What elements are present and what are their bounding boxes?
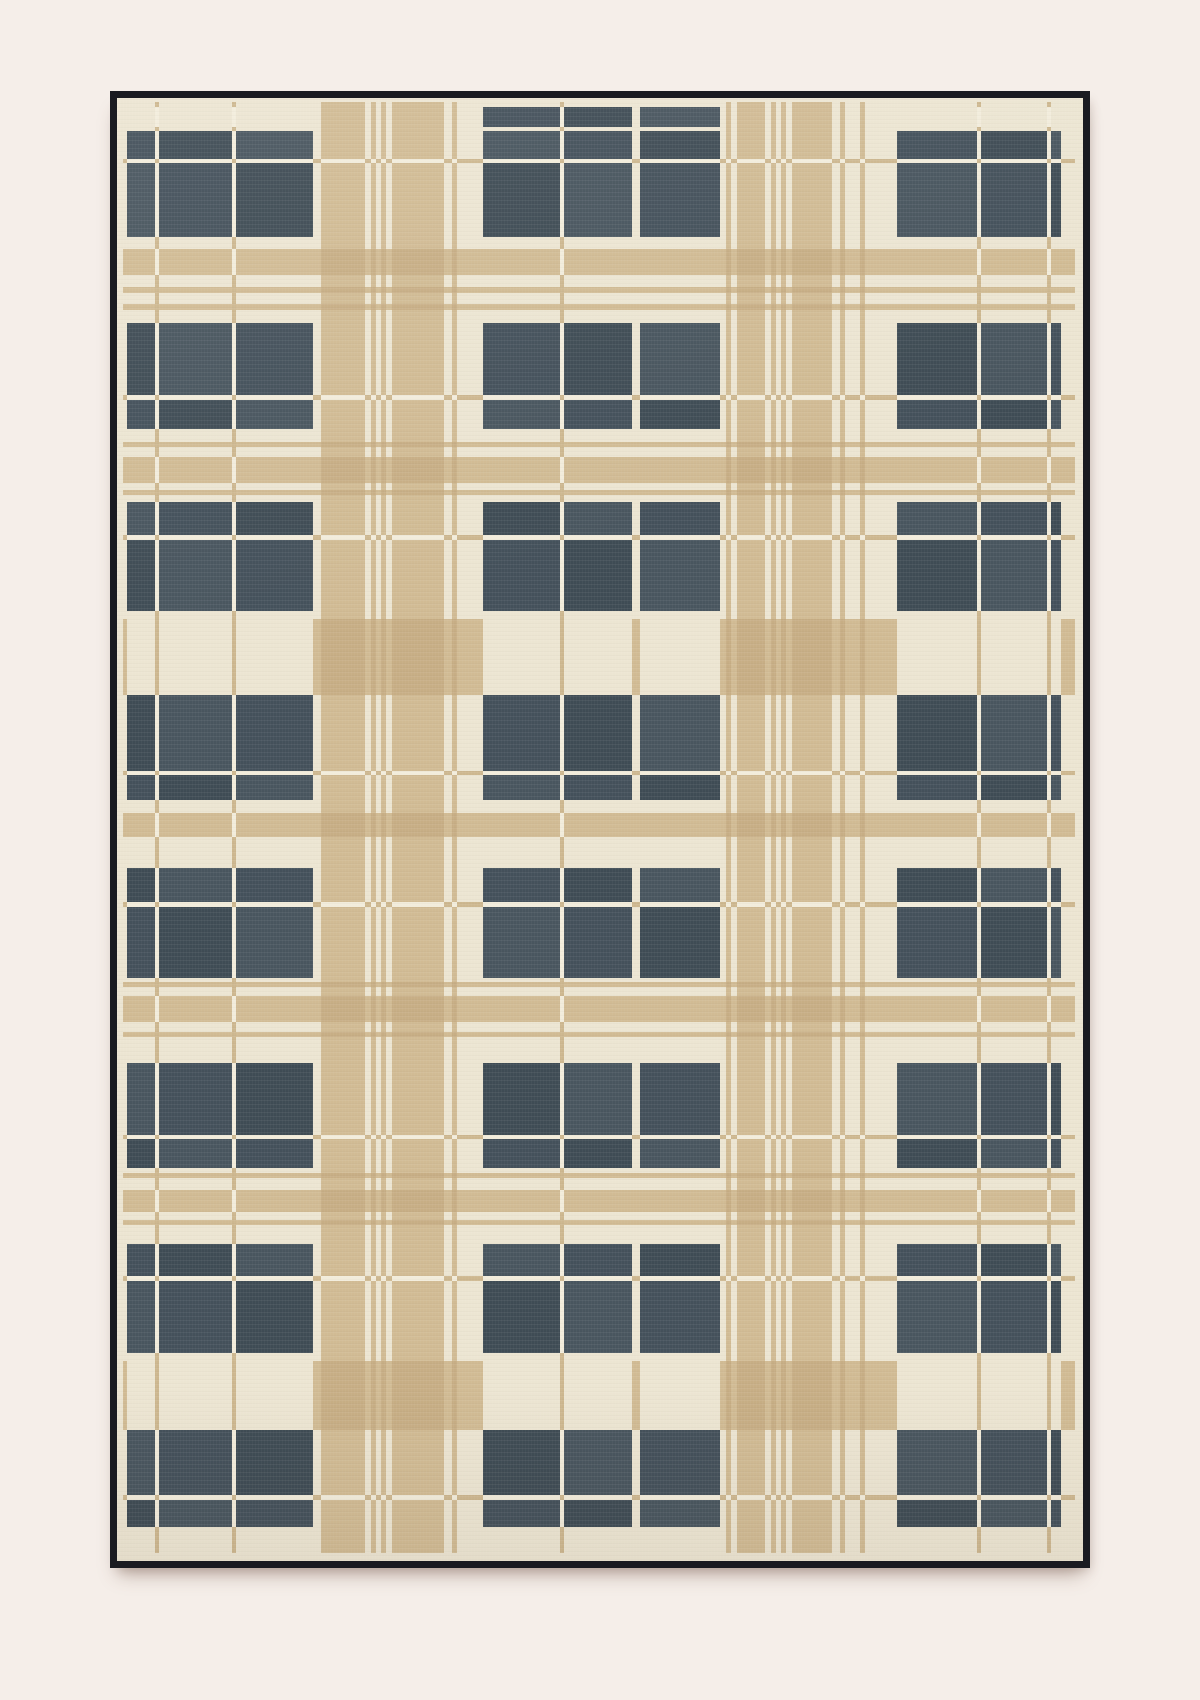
weave-cell [1051,868,1061,902]
weave-cell [981,1063,1047,1135]
weave-cell [865,1430,897,1495]
weave-cell [392,310,444,323]
weave-cell [236,1361,313,1430]
weave-cell [845,540,860,611]
weave-cell [321,107,365,127]
weave-cell [865,1225,897,1244]
weave-cell [392,429,444,442]
weave-cell [444,1361,452,1430]
weave-cell [1051,1353,1061,1361]
weave-cell [444,611,452,619]
weave-cell [313,107,321,127]
weave-cell [737,400,765,429]
weave-cell [1061,495,1075,502]
weave-cell [845,1500,860,1527]
weave-cell [392,107,444,127]
weave-cell [1051,400,1061,429]
weave-cell [392,996,444,1022]
weave-cell [640,249,720,275]
weave-cell [564,1037,632,1063]
weave-cell [313,400,321,429]
weave-cell [127,293,155,304]
weave-cell [321,429,365,442]
weave-cell [737,483,765,490]
weave-cell [564,293,632,304]
weave-cell [897,775,977,800]
weave-cell [897,1178,977,1190]
weave-cell [832,540,840,611]
weave-cell [832,987,840,996]
weave-cell [737,837,765,868]
weave-cell [632,775,640,800]
weave-cell [1061,429,1075,442]
weave-cell [392,275,444,287]
weave-cell [444,237,452,249]
weave-cell [640,1500,720,1527]
weave-cell [792,237,832,249]
weave-cell [737,540,765,611]
weave-cell [392,447,444,457]
weave-cell [897,1063,977,1135]
weave-cell [1061,1063,1075,1135]
weave-cell [457,775,483,800]
weave-cell [236,1139,313,1168]
weave-cell [127,483,155,490]
weave-cell [737,447,765,457]
weave-cell [1051,837,1061,868]
weave-cell [1051,1190,1061,1212]
weave-cell [832,775,840,800]
weave-cell [845,1353,860,1361]
weave-cell [737,1022,765,1032]
weave-cell [321,323,365,395]
weave-cell [313,310,321,323]
weave-cell [236,868,313,902]
weave-cell [444,447,452,457]
weave-cell [1061,323,1075,395]
weave-cell [845,163,860,237]
weave-cell [845,483,860,490]
weave-cell [1061,1225,1075,1244]
weave-cell [321,447,365,457]
weave-cell [632,293,640,304]
weave-cell [981,495,1047,502]
weave-cell [897,1212,977,1220]
weave-cell [845,107,860,127]
weave-cell [236,495,313,502]
weave-cell [483,907,560,978]
weave-cell [865,1527,897,1553]
weave-cell [981,611,1047,619]
weave-cell [792,813,832,837]
weave-cell [236,293,313,304]
weave-cell [457,293,483,304]
weave-cell [392,1527,444,1553]
weave-cell [897,293,977,304]
weave-cell [1061,695,1075,771]
weave-cell [981,275,1047,287]
weave-cell [845,907,860,978]
weave-cell [640,987,720,996]
weave-cell [236,987,313,996]
weave-cell [444,1244,452,1276]
weave-cell [1061,293,1075,304]
weave-cell [792,249,832,275]
weave-cell [313,1225,321,1244]
weave-cell [321,1022,365,1032]
weave-cell [897,1361,977,1430]
weave-cell [981,237,1047,249]
weave-cell [737,996,765,1022]
weave-cell [321,996,365,1022]
weave-cell [321,400,365,429]
weave-cell [321,907,365,978]
weave-cell [321,1281,365,1353]
weave-cell [981,1500,1047,1527]
weave-cell [845,1430,860,1495]
weave-cell [159,275,232,287]
weave-cell [321,1361,365,1430]
weave-cell [483,1244,560,1276]
weave-cell [737,695,765,771]
weave-cell [981,310,1047,323]
weave-cell [897,1430,977,1495]
weave-cell [897,1225,977,1244]
weave-cell [865,495,897,502]
weave-cell [897,1244,977,1276]
weave-cell [640,323,720,395]
weave-cell [457,310,483,323]
weave-cell [897,987,977,996]
weave-cell [632,1353,640,1361]
weave-cell [236,237,313,249]
weave-cell [444,1353,452,1361]
weave-cell [457,400,483,429]
weave-cell [457,163,483,237]
weave-cell [321,540,365,611]
weave-cell [632,1500,640,1527]
weave-cell [127,457,155,483]
weave-cell [127,310,155,323]
weave-cell [313,837,321,868]
weave-cell [640,1361,720,1430]
weave-cell [457,1063,483,1135]
weave-cell [865,163,897,237]
weave-cell [897,996,977,1022]
weave-cell [1061,619,1075,695]
weave-cell [1051,1430,1061,1495]
weave-cell [897,1500,977,1527]
weave-cell [792,429,832,442]
weave-cell [640,1244,720,1276]
weave-cell [792,457,832,483]
weave-cell [564,1361,632,1430]
weave-cell [1051,775,1061,800]
weave-cell [457,457,483,483]
weave-cell [632,996,640,1022]
weave-cell [392,293,444,304]
weave-cell [845,1225,860,1244]
weave-cell [865,775,897,800]
weave-cell [737,1037,765,1063]
weave-cell [1061,483,1075,490]
weave-cell [640,1178,720,1190]
weave-cell [897,107,977,127]
weave-cell [444,1037,452,1063]
weave-cell [564,540,632,611]
weave-cell [159,1527,232,1553]
weave-cell [1061,502,1075,535]
weave-cell [981,293,1047,304]
weave-cell [632,1244,640,1276]
weave-cell [444,1190,452,1212]
weave-cell [483,1361,560,1430]
rug-frame [110,91,1090,1568]
weave-cell [981,429,1047,442]
weave-cell [321,237,365,249]
weave-cell [832,1500,840,1527]
weave-cell [159,1361,232,1430]
weave-cell [865,868,897,902]
weave-cell [457,1190,483,1212]
weave-cell [321,1037,365,1063]
weave-cell [457,495,483,502]
weave-cell [483,1430,560,1495]
weave-cell [457,237,483,249]
weave-cell [897,457,977,483]
weave-cell [1051,323,1061,395]
weave-cell [392,987,444,996]
weave-cell [483,868,560,902]
weave-cell [832,611,840,619]
weave-cell [865,813,897,837]
weave-cell [457,107,483,127]
weave-cell [444,1527,452,1553]
weave-cell [321,131,365,159]
weave-cell [159,775,232,800]
weave-cell [483,131,560,159]
weave-cell [1051,813,1061,837]
weave-cell [321,293,365,304]
weave-cell [865,1353,897,1361]
weave-cell [564,107,632,127]
weave-cell [1061,611,1075,619]
weave-cell [832,1527,840,1553]
weave-cell [737,868,765,902]
weave-cell [457,1178,483,1190]
weave-cell [127,1244,155,1276]
weave-cell [1061,1139,1075,1168]
weave-cell [483,540,560,611]
weave-cell [865,249,897,275]
weave-cell [865,1212,897,1220]
weave-cell [792,907,832,978]
weave-cell [981,775,1047,800]
weave-cell [483,695,560,771]
weave-cell [159,1063,232,1135]
weave-cell [640,483,720,490]
weave-cell [313,1281,321,1353]
weave-cell [1051,163,1061,237]
weave-cell [1051,310,1061,323]
weave-cell [444,163,452,237]
weave-cell [236,619,313,695]
weave-cell [392,163,444,237]
weave-cell [1061,163,1075,237]
weave-cell [981,800,1047,813]
weave-cell [236,163,313,237]
weave-cell [865,429,897,442]
weave-cell [737,907,765,978]
weave-cell [159,1353,232,1361]
weave-cell [792,1139,832,1168]
weave-cell [897,495,977,502]
weave-cell [981,1212,1047,1220]
weave-cell [321,611,365,619]
weave-cell [321,800,365,813]
weave-cell [1061,400,1075,429]
weave-cell [632,1037,640,1063]
weave-cell [313,775,321,800]
weave-cell [159,483,232,490]
weave-cell [1061,275,1075,287]
weave-cell [457,868,483,902]
weave-cell [159,611,232,619]
weave-cell [897,400,977,429]
weave-cell [457,275,483,287]
weave-cell [564,502,632,535]
weave-cell [313,457,321,483]
weave-cell [392,619,444,695]
weave-cell [127,987,155,996]
weave-cell [457,619,483,695]
weave-cell [321,457,365,483]
weave-cell [897,540,977,611]
weave-cell [313,275,321,287]
weave-cell [483,987,560,996]
weave-cell [392,502,444,535]
weave-cell [483,429,560,442]
weave-cell [792,310,832,323]
weave-cell [444,800,452,813]
weave-cell [981,1225,1047,1244]
weave-cell [483,310,560,323]
weave-cell [845,800,860,813]
weave-cell [321,1212,365,1220]
weave-cell [236,1178,313,1190]
weave-cell [127,323,155,395]
weave-cell [640,1527,720,1553]
weave-cell [981,1361,1047,1430]
weave-cell [313,907,321,978]
weave-cell [159,400,232,429]
weave-cell [457,837,483,868]
weave-cell [865,1244,897,1276]
weave-cell [159,237,232,249]
weave-cell [792,323,832,395]
weave-cell [640,502,720,535]
weave-cell [236,1212,313,1220]
weave-cell [159,813,232,837]
weave-cell [321,813,365,837]
weave-cell [127,1037,155,1063]
weave-cell [564,131,632,159]
weave-cell [1051,447,1061,457]
weave-cell [127,695,155,771]
weave-cell [483,163,560,237]
weave-cell [640,275,720,287]
weave-cell [632,1063,640,1135]
weave-cell [1051,1361,1061,1430]
weave-cell [640,310,720,323]
weave-cell [632,1527,640,1553]
weave-cell [321,868,365,902]
weave-cell [564,868,632,902]
weave-cell [1061,249,1075,275]
weave-cell [236,323,313,395]
weave-cell [564,1212,632,1220]
weave-cell [159,1225,232,1244]
weave-cell [321,695,365,771]
weave-cell [792,163,832,237]
weave-cell [392,1500,444,1527]
weave-cell [457,1527,483,1553]
weave-cell [640,837,720,868]
weave-cell [792,1500,832,1527]
weave-cell [845,1037,860,1063]
weave-cell [392,237,444,249]
weave-cell [457,813,483,837]
weave-cell [737,495,765,502]
weave-cell [1061,800,1075,813]
weave-cell [640,131,720,159]
weave-cell [564,813,632,837]
weave-cell [159,163,232,237]
weave-cell [792,107,832,127]
weave-cell [640,293,720,304]
weave-cell [313,1353,321,1361]
weave-cell [127,1212,155,1220]
weave-cell [792,1063,832,1135]
weave-cell [564,1281,632,1353]
weave-cell [981,1037,1047,1063]
weave-cell [632,813,640,837]
weave-cell [1051,695,1061,771]
weave-cell [564,987,632,996]
weave-cell [792,1022,832,1032]
weave-cell [457,131,483,159]
weave-cell [483,495,560,502]
weave-cell [640,907,720,978]
weave-cell [159,540,232,611]
weave-cell [321,1500,365,1527]
weave-cell [313,1190,321,1212]
weave-cell [832,1361,840,1430]
weave-cell [737,131,765,159]
weave-cell [865,323,897,395]
weave-cell [236,1037,313,1063]
weave-cell [127,1225,155,1244]
weave-cell [483,1139,560,1168]
weave-cell [321,310,365,323]
weave-cell [321,1225,365,1244]
weave-cell [392,1037,444,1063]
weave-cell [737,237,765,249]
weave-cell [321,1190,365,1212]
weave-cell [457,1022,483,1032]
weave-cell [792,1281,832,1353]
weave-cell [845,1190,860,1212]
